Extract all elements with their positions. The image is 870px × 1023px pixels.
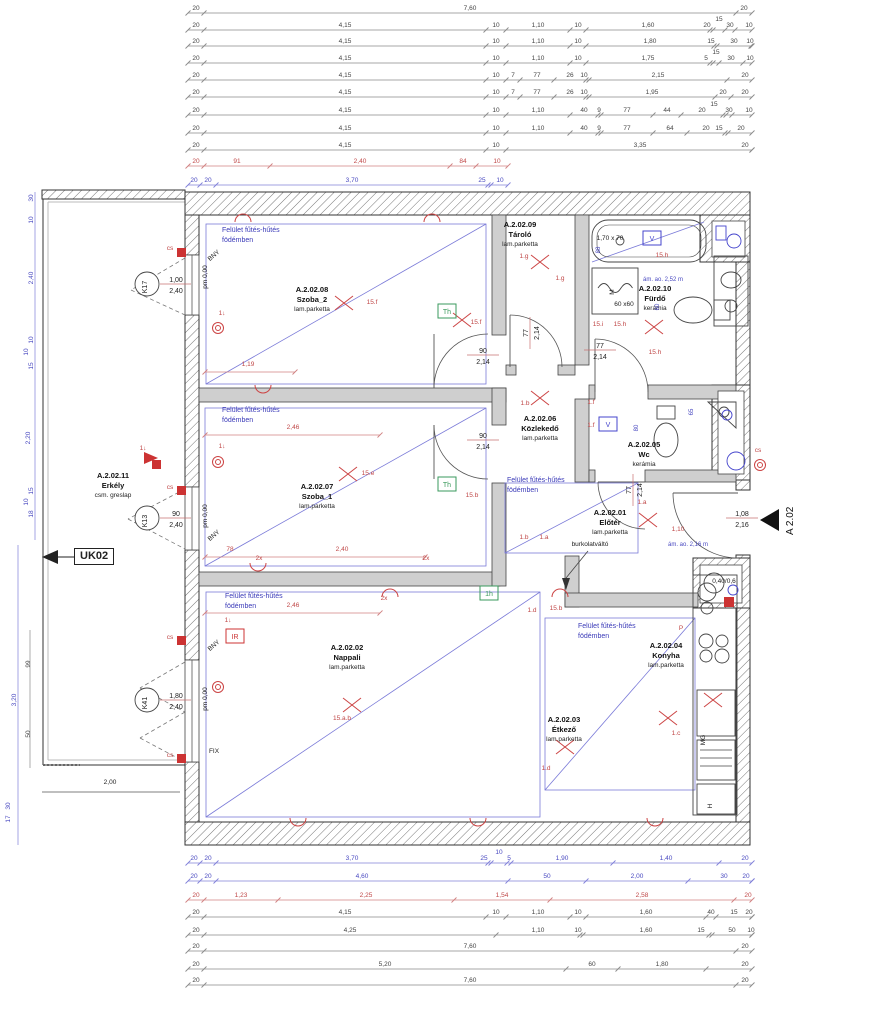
dim-label: 20 <box>192 977 200 984</box>
red-code-label: 2x <box>423 555 431 562</box>
dim-label: 10 <box>492 107 500 114</box>
red-code-label: cs <box>167 484 174 491</box>
junction-box-icon <box>177 636 186 645</box>
room-code: A.2.02.05 <box>628 440 661 449</box>
room-floor: lam.parketta <box>294 306 330 313</box>
room-name: Nappali <box>333 653 360 662</box>
dim-label: 26 <box>566 89 574 96</box>
dim-label: 2,25 <box>360 892 373 899</box>
dim-label: 84 <box>459 158 467 165</box>
dim-label: 9 <box>597 107 601 114</box>
red-code-label: 15.f <box>471 319 482 326</box>
door-height: 2,14 <box>593 354 607 361</box>
wall-hatched <box>185 550 199 660</box>
window-tag-code: K41 <box>142 697 149 710</box>
red-code-label: 1.c <box>672 730 681 737</box>
blue-label: ám. ao. 2,52 m <box>643 277 683 283</box>
dim-label: 10 <box>745 22 753 29</box>
room-code: A.2.02.01 <box>594 508 627 517</box>
blue-label: ám. ao. 2,16 m <box>668 542 708 548</box>
dim-label: 1,60 <box>640 927 653 934</box>
dim-label: 91 <box>233 158 241 165</box>
red-code-label: 1.d <box>541 765 550 772</box>
toilet-tank-wc <box>657 406 675 419</box>
dim-label: 4,15 <box>339 107 352 114</box>
black-label: 60 x60 <box>614 301 634 308</box>
dim-label: 20 <box>740 5 748 12</box>
dim-label: 20 <box>192 142 200 149</box>
wall-hatched <box>42 190 185 199</box>
red-code-label: 2,46 <box>287 424 300 431</box>
door-dim: 1,082,16 <box>726 511 758 529</box>
door-height: 2,16 <box>735 522 749 529</box>
red-code-label: 1.a <box>637 499 646 506</box>
fridge <box>697 784 735 814</box>
dim-label: 20 <box>698 107 706 114</box>
dim-label: 20 <box>192 38 200 45</box>
dim-label: 10 <box>28 216 35 224</box>
dim-label: 20 <box>190 855 198 862</box>
window-size-height: 2,40 <box>169 704 183 711</box>
heating-zone-diagonal <box>592 222 704 262</box>
dim-label: 10 <box>493 158 501 165</box>
room-code: A.2.02.02 <box>331 643 364 652</box>
black-label: FIX <box>209 748 220 755</box>
dim-label: 30 <box>727 55 735 62</box>
red-code-label: 1↓ <box>225 617 232 624</box>
dim-label: 20 <box>192 909 200 916</box>
black-label: H <box>707 803 714 808</box>
red-code-label: 1.f <box>587 399 594 406</box>
dim-label: 4,15 <box>339 125 352 132</box>
room-labels: A.2.02.08Szoba_2lam.parkettaA.2.02.09Tár… <box>95 220 685 743</box>
heating-note-line2: födémben <box>507 487 538 494</box>
dim-label: 3,35 <box>634 142 647 149</box>
door-arc <box>510 315 562 367</box>
dim-label: 17 <box>5 815 12 823</box>
dim-label: 26 <box>566 72 574 79</box>
black-label: 0,40/0,6 <box>712 578 736 585</box>
dim-label: 15 <box>707 38 715 45</box>
red-code-label: 2,40 <box>336 546 349 553</box>
dim-label: 10 <box>495 849 503 856</box>
blue-label: 65 <box>689 408 695 415</box>
room-code: A.2.02.04 <box>650 641 683 650</box>
cooktop-burner <box>715 649 729 663</box>
dim-label: 20 <box>190 177 198 184</box>
dim-label: 40 <box>707 909 715 916</box>
dim-label: 7 <box>511 72 515 79</box>
dim-label: 1,10 <box>532 22 545 29</box>
appliance-mg <box>697 690 735 736</box>
dim-label: 40 <box>580 107 588 114</box>
dim-label: 10 <box>492 89 500 96</box>
heating-note-line2: födémben <box>578 633 609 640</box>
door-width: 77 <box>626 486 633 494</box>
dim-label: 20 <box>192 927 200 934</box>
kitchen-counter <box>693 575 737 815</box>
room-floor: lam.parketta <box>299 503 335 510</box>
wall-partition <box>506 365 516 375</box>
wall-hatched <box>185 192 750 215</box>
dim-label: 20 <box>192 89 200 96</box>
dim-label: 10 <box>492 909 500 916</box>
dim-label: 20 <box>192 55 200 62</box>
red-code-label: cs <box>755 447 762 454</box>
dim-label: 30 <box>720 873 728 880</box>
dim-label: 30 <box>725 107 733 114</box>
room-name: Erkély <box>102 481 125 490</box>
socket-icon <box>216 685 221 690</box>
red-code-label: 15.f <box>367 299 378 306</box>
dim-label: 10 <box>492 125 500 132</box>
cooktop-burner <box>699 634 713 648</box>
black-label: 2,00 <box>104 779 117 786</box>
dim-label: 50 <box>25 730 32 738</box>
window-size-height: 2,40 <box>169 522 183 529</box>
dim-label: 3,70 <box>346 855 359 862</box>
door-dim: 902,14 <box>467 348 499 366</box>
entry-marker-label: A 2.02 <box>785 507 796 535</box>
room-name: Szoba_1 <box>302 492 332 501</box>
dim-label: 15 <box>697 927 705 934</box>
wall-hatched <box>185 822 750 845</box>
door-dim: 772,14 <box>523 317 541 349</box>
window-size-width: 90 <box>172 511 180 518</box>
room-code: A.2.02.08 <box>296 285 329 294</box>
wall-partition <box>199 572 500 586</box>
door-height: 2,14 <box>637 483 644 497</box>
room-code: A.2.02.09 <box>504 220 537 229</box>
tag-box-label: 1h <box>485 591 493 598</box>
dim-label: 10 <box>580 72 588 79</box>
dim-label: 30 <box>5 802 12 810</box>
heating-note-line2: födémben <box>222 417 253 424</box>
sink-bath-2 <box>725 300 737 312</box>
cooktop-burner <box>700 650 712 662</box>
dim-label: 20 <box>192 107 200 114</box>
dim-label: 20 <box>741 961 749 968</box>
dim-label: 3,70 <box>346 177 359 184</box>
dim-label: 10 <box>574 909 582 916</box>
red-code-label: 15.h <box>656 252 669 259</box>
room-floor: lam.parketta <box>502 241 538 248</box>
socket-icon <box>213 682 224 693</box>
room-name: Konyha <box>652 651 680 660</box>
dim-label: 9 <box>597 125 601 132</box>
dim-label: 2,58 <box>636 892 649 899</box>
dim-label: 10 <box>747 927 755 934</box>
black-label: BNY <box>207 528 222 542</box>
dim-label: 10 <box>496 177 504 184</box>
black-label: burkolatváltó <box>572 541 609 548</box>
red-code-label: 1.g <box>555 275 564 282</box>
socket-icon <box>216 460 221 465</box>
dim-label: 30 <box>730 38 738 45</box>
dim-label: 1,10 <box>532 55 545 62</box>
dim-label: 10 <box>492 72 500 79</box>
dim-label: 20 <box>741 977 749 984</box>
dim-label: 10 <box>492 142 500 149</box>
left-dimension-column: 30102,401010152,201510183,2030179950 <box>5 192 35 845</box>
room-floor: kerámia <box>632 461 656 468</box>
dim-label: 1,40 <box>660 855 673 862</box>
blue-label: 88 <box>596 246 602 253</box>
dim-label: 15 <box>715 125 723 132</box>
dim-label: 20 <box>741 943 749 950</box>
red-code-label: cs <box>167 245 174 252</box>
dim-label: 1,75 <box>642 55 655 62</box>
dim-label: 10 <box>492 38 500 45</box>
door-height: 2,14 <box>476 444 490 451</box>
red-code-label: 1.d <box>527 607 536 614</box>
dim-label: 5,20 <box>379 961 392 968</box>
door-width: 90 <box>479 433 487 440</box>
dim-label: 40 <box>580 125 588 132</box>
heating-zones <box>205 222 704 817</box>
dim-label: 1,95 <box>646 89 659 96</box>
dim-label: 1,60 <box>642 22 655 29</box>
heating-note-line2: födémben <box>222 237 253 244</box>
room-name: Wc <box>638 450 649 459</box>
dim-label: 20 <box>204 855 212 862</box>
window-size-width: 1,00 <box>169 277 183 284</box>
dim-label: 1,10 <box>532 107 545 114</box>
wall-partition <box>575 215 589 365</box>
cooktop-burner <box>716 635 728 647</box>
dim-label: 30 <box>28 194 35 202</box>
dim-label: 4,15 <box>339 909 352 916</box>
room-floor: lam.parketta <box>522 435 558 442</box>
blue-label: 80 <box>634 424 640 431</box>
kitchen-red-unit <box>724 597 734 607</box>
door-width: 1,08 <box>735 511 749 518</box>
dim-label: 4,15 <box>339 55 352 62</box>
black-label: pm 0,00 <box>202 265 209 289</box>
shaft-inner <box>718 391 744 474</box>
red-code-label: 1.f <box>587 422 594 429</box>
dim-label: 4,25 <box>344 927 357 934</box>
dim-label: 77 <box>623 107 631 114</box>
red-code-label: 1.a <box>539 534 548 541</box>
black-label: 1,70 x 70 <box>597 235 624 242</box>
red-code-label: 15.e <box>362 470 375 477</box>
tag-box-label: V <box>606 422 611 429</box>
red-code-label: 15.b <box>466 492 479 499</box>
red-code-label: 15.b <box>550 605 563 612</box>
dim-label: 4,60 <box>356 873 369 880</box>
dim-label: 1,60 <box>640 909 653 916</box>
wall-hatched <box>185 762 199 822</box>
dim-label: 20 <box>745 909 753 916</box>
wall-partition <box>492 483 506 586</box>
dim-label: 20 <box>192 961 200 968</box>
dim-label: 10 <box>745 107 753 114</box>
red-code-label: 15.h <box>614 321 627 328</box>
dim-label: 20 <box>204 177 212 184</box>
door-height: 2,14 <box>534 326 541 340</box>
black-label: pm 0,00 <box>202 687 209 711</box>
red-code-label: 1,10 <box>672 526 685 533</box>
dim-label: 4,15 <box>339 22 352 29</box>
dim-label: 2,15 <box>652 72 665 79</box>
dim-label: 15 <box>712 49 720 56</box>
room-code: A.2.02.10 <box>639 284 672 293</box>
dim-label: 60 <box>588 961 596 968</box>
dim-label: 1,10 <box>532 909 545 916</box>
black-label: M <box>609 289 616 294</box>
dim-label: 20 <box>702 125 710 132</box>
uk02-marker-label: UK02 <box>74 548 114 565</box>
window-tag-code: K17 <box>142 281 149 294</box>
dim-label: 2,40 <box>28 271 35 284</box>
dim-label: 77 <box>533 89 541 96</box>
wall-partition <box>589 385 595 399</box>
room-floor: lam.parketta <box>648 662 684 669</box>
dim-label: 77 <box>623 125 631 132</box>
heating-note-line1: Felület fűtés-hűtés <box>222 407 280 414</box>
dim-label: 20 <box>192 943 200 950</box>
dim-label: 4,15 <box>339 89 352 96</box>
dim-label: 10 <box>492 22 500 29</box>
red-code-label: 78 <box>226 546 234 553</box>
floorplan-svg: 207,6020204,15101,10101,6020153010204,15… <box>0 0 870 1023</box>
dim-label: 50 <box>543 873 551 880</box>
dim-label: 10 <box>23 498 30 506</box>
dim-label: 1,80 <box>644 38 657 45</box>
room-name: Tároló <box>509 230 532 239</box>
dim-label: 20 <box>192 158 200 165</box>
wall-hatched <box>185 315 199 487</box>
junction-box-icon <box>152 460 161 469</box>
door-height: 2,14 <box>476 359 490 366</box>
dim-label: 2,40 <box>354 158 367 165</box>
dim-label: 20 <box>192 72 200 79</box>
room-name: Fürdő <box>644 294 666 303</box>
dim-label: 20 <box>741 89 749 96</box>
dim-label: 2,20 <box>25 431 32 444</box>
room-floor: lam.parketta <box>592 529 628 536</box>
red-code-label: 1↓ <box>140 445 147 452</box>
dim-label: 77 <box>533 72 541 79</box>
red-code-label: 2x <box>256 555 264 562</box>
floorplan: 207,6020204,15101,10101,6020153010204,15… <box>0 0 870 1023</box>
dim-label: 15 <box>28 362 35 370</box>
red-code-label: 1↓ <box>219 310 226 317</box>
toilet-tank-bath <box>714 300 730 320</box>
dim-label: 1,10 <box>532 125 545 132</box>
dim-label: 4,15 <box>339 38 352 45</box>
junction-box-icon <box>177 248 186 257</box>
dim-label: 1,23 <box>235 892 248 899</box>
room-code: A.2.02.11 <box>97 471 129 480</box>
red-code-label: 15.a.b <box>333 715 351 722</box>
wall-lamp-icon <box>250 563 266 571</box>
dim-label: 64 <box>666 125 674 132</box>
wall-partition <box>492 215 506 335</box>
dim-label: 1,10 <box>532 927 545 934</box>
dim-label: 10 <box>746 38 754 45</box>
dim-label: 15 <box>710 101 718 108</box>
dim-label: 10 <box>574 22 582 29</box>
dim-label: 7,60 <box>464 5 477 12</box>
dim-label: 20 <box>192 5 200 12</box>
socket-icon <box>758 463 763 468</box>
red-code-label: 1.b <box>519 534 528 541</box>
dim-label: 3,20 <box>11 693 18 706</box>
red-code-label: 1.g <box>519 253 528 260</box>
room-floor: csm. greslap <box>95 492 132 499</box>
socket-icon <box>213 457 224 468</box>
red-code-label: 2,46 <box>287 602 300 609</box>
dim-label: 20 <box>741 142 749 149</box>
dim-label: 50 <box>728 927 736 934</box>
red-code-label: P <box>679 625 683 632</box>
dim-label: 7 <box>511 89 515 96</box>
dim-label: 4,15 <box>339 142 352 149</box>
heating-note-line2: födémben <box>225 603 256 610</box>
red-code-label: 1,19 <box>242 361 255 368</box>
dim-label: 7,60 <box>464 943 477 950</box>
dim-label: 99 <box>25 660 32 668</box>
red-code-label: 1.b <box>520 400 529 407</box>
dim-label: 1,80 <box>656 961 669 968</box>
dim-label: 20 <box>192 892 200 899</box>
room-name: Közlekedő <box>521 424 559 433</box>
red-code-label: 2x <box>381 595 389 602</box>
dim-label: 25 <box>478 177 486 184</box>
red-code-label: cs <box>167 634 174 641</box>
heating-note-line1: Felület fűtés-hűtés <box>507 477 565 484</box>
dim-label: 1,10 <box>532 38 545 45</box>
window-size-height: 2,40 <box>169 288 183 295</box>
dim-label: 20 <box>742 873 750 880</box>
dim-label: 5 <box>704 55 708 62</box>
red-code-label: 1↓ <box>219 443 226 450</box>
door-width: 77 <box>596 343 604 350</box>
room-name: Étkező <box>552 725 577 734</box>
wall-partition <box>199 388 506 402</box>
dim-label: 7,60 <box>464 977 477 984</box>
dim-label: 20 <box>741 72 749 79</box>
wall-hatched <box>185 215 199 255</box>
window-size-width: 1,80 <box>169 693 183 700</box>
heating-note-line1: Felület fűtés-hűtés <box>222 227 280 234</box>
blue-label: 60 <box>655 303 661 310</box>
dim-label: 20 <box>190 873 198 880</box>
door-width: 90 <box>479 348 487 355</box>
room-name: Előtér <box>599 518 620 527</box>
wall-partition <box>575 399 589 482</box>
dim-label: 10 <box>574 38 582 45</box>
dim-label: 20 <box>192 125 200 132</box>
room-floor: lam.parketta <box>546 736 582 743</box>
dim-label: 10 <box>492 55 500 62</box>
socket-icon <box>216 326 221 331</box>
dim-label: 2,00 <box>631 873 644 880</box>
dim-label: 20 <box>744 892 752 899</box>
wall-partition <box>565 593 698 607</box>
dim-label: 44 <box>663 107 671 114</box>
dim-label: 10 <box>28 336 35 344</box>
room-floor: lam.parketta <box>329 664 365 671</box>
wall-partition <box>589 470 595 482</box>
dim-label: 10 <box>23 348 30 356</box>
red-code-label: 15.h <box>649 349 662 356</box>
dim-label: 18 <box>28 510 35 518</box>
dim-label: 10 <box>746 55 754 62</box>
dim-label: 20 <box>703 22 711 29</box>
